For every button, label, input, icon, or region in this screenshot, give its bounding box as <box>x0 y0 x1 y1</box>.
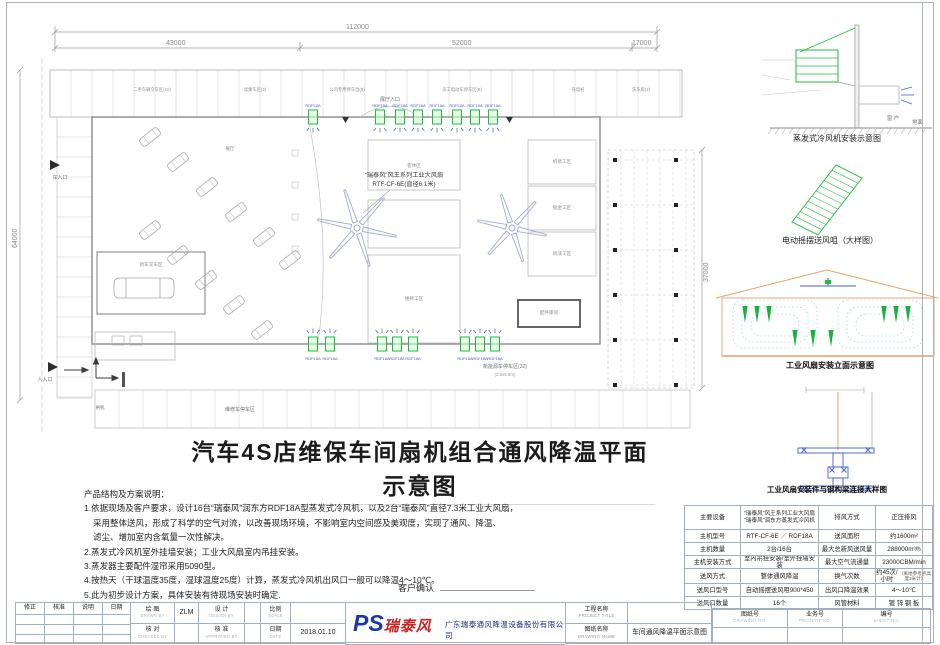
drawing-no-label: 图纸号DRAWING NO. <box>713 609 788 628</box>
spec-label: 主机安装方式 <box>685 556 741 569</box>
checked-by-value <box>175 624 199 644</box>
spec-value: RTF-CF-6E ／ RDF18A <box>741 530 819 543</box>
drawn-by-value: ZLM <box>175 603 199 624</box>
note-line: 2.蒸发式冷风机室外挂墙安装；工业大风扇室内吊挂安装。 <box>84 545 564 559</box>
scale-value <box>291 603 346 624</box>
customer-confirm-label: 客户确认 <box>398 583 434 593</box>
spec-value: “瑞泰风”风王系列工业大风扇 “瑞泰风”润东方蒸发式冷风机 <box>741 506 819 530</box>
detail3-caption: 工业风扇安装立面示意图 <box>745 360 915 371</box>
spec-value: 整体通风降温 <box>741 569 819 584</box>
spec-label: 主机数量 <box>685 543 741 556</box>
signature-line <box>440 580 535 591</box>
spec-value: 自动摇摆送风咀900*450 <box>741 584 819 597</box>
scale-label: 比例SCALE <box>261 603 291 624</box>
detail4-caption: 工业风扇安装件与钢构梁连接大样图 <box>742 484 912 495</box>
project-no-label: 业务号PROJECT NO. <box>788 609 843 628</box>
rev-cell <box>103 635 131 644</box>
revision-table: 修正 核准 说明 日期 <box>15 602 131 644</box>
logo-brand-name: 瑞泰风 <box>384 618 432 635</box>
company-name: 广东瑞泰通风降温设备股份有限公司 <box>445 619 565 641</box>
drawing-name-label: 图纸名称DRAWING NAME <box>566 624 628 644</box>
spec-label: 出风口降温效果 <box>819 584 876 597</box>
spec-label: 最大空气流通量 <box>819 556 876 569</box>
signature-block: 绘 图DRAWN BY ZLM 设 计DESIGN BY 比例SCALE 核 对… <box>130 602 346 644</box>
spec-value: 2台/16台 <box>741 543 819 556</box>
spec-value: 4～10℃ <box>876 584 933 597</box>
project-title-label: 工程名称PROJECT TITLE <box>566 603 628 624</box>
spec-label: 最大总新风送风量 <box>819 543 876 556</box>
numbering-block: 图纸号DRAWING NO. 业务号PROJECT NO. 编号SHEET NO… <box>712 608 931 644</box>
drawing-name-value: 车间通风降温平面示意图 <box>628 624 712 644</box>
rev-header: 修正 <box>16 603 45 615</box>
spec-label: 排风方式 <box>819 506 876 530</box>
note-line: 3.蒸发器主要配件湿帘采用5090型。 <box>84 559 564 573</box>
sheet-no-label: 编号SHEET NO. <box>843 609 931 628</box>
rev-cell <box>45 635 74 644</box>
drawn-by-label: 绘 图DRAWN BY <box>131 603 175 624</box>
note-line: 1.依据现场及客户要求，设计16台“瑞泰风”润东方RDF18A型蒸发式冷风机，以… <box>84 501 564 515</box>
logo-block: PS瑞泰风 广东瑞泰通风降温设备股份有限公司 <box>345 602 565 645</box>
rev-cell <box>16 625 45 635</box>
company-logo: PS瑞泰风 <box>353 610 432 637</box>
design-by-label: 设 计DESIGN BY <box>199 603 245 624</box>
spec-value: 288000m³/h <box>876 543 933 556</box>
rev-cell <box>74 635 103 644</box>
spec-label: 送风口型号 <box>685 584 741 597</box>
logo-ps-mark: PS <box>353 610 384 636</box>
detail2-caption: 电动摇摆送风咀（大样图） <box>745 235 915 246</box>
rev-cell <box>45 625 74 635</box>
sheet-no-value <box>843 628 931 644</box>
approved-by-label: 核 准APPROVED BY <box>199 624 245 644</box>
spec-value: 室内吊挂安装/室外挂墙安装 <box>741 556 819 569</box>
project-title-value <box>628 603 712 624</box>
note-line: 采用整体送风，形成了科学的空气对流，以改善现场环境，不影响室内空间感及美观度，实… <box>84 516 564 530</box>
checked-by-label: 核 对CHECKED BY <box>131 624 175 644</box>
project-block: 工程名称PROJECT TITLE 图纸名称DRAWING NAME 车间通风降… <box>565 602 712 644</box>
rev-cell <box>45 615 74 625</box>
date-label: 日期DATE <box>261 624 291 644</box>
notes-heading: 产品结构及方案说明： <box>84 487 564 501</box>
approved-by-value <box>245 624 261 644</box>
spec-label: 送风方式 <box>685 569 741 584</box>
note-line: 滤尘、增加室内含氧量一次性解决。 <box>84 530 564 544</box>
rev-cell <box>74 625 103 635</box>
spec-label: 换气次数 <box>819 569 876 584</box>
rev-cell <box>16 615 45 625</box>
rev-cell <box>74 615 103 625</box>
spec-value: 正压排风 <box>876 506 933 530</box>
design-by-value <box>245 603 261 624</box>
spec-label: 主机型号 <box>685 530 741 543</box>
rev-header: 核准 <box>45 603 74 615</box>
rev-cell <box>103 615 131 625</box>
detail1-caption: 蒸发式冷风机安装示意图 <box>752 133 922 144</box>
spec-value: 约1600m² <box>876 530 933 543</box>
date-value: 2018.01.10 <box>291 624 346 644</box>
spec-table: 主要设备 “瑞泰风”风王系列工业大风扇 “瑞泰风”润东方蒸发式冷风机 排风方式 … <box>684 505 933 610</box>
spec-label: 送风面积 <box>819 530 876 543</box>
spec-value: 23000CBM/min <box>876 556 933 569</box>
spec-label: 主要设备 <box>685 506 741 530</box>
spec-value-sub: （离地参考点高度3米计） <box>898 571 932 581</box>
rev-header: 日期 <box>103 603 131 615</box>
project-no-value <box>788 628 843 644</box>
drawing-no-value <box>713 628 788 644</box>
spec-value: 约45次/小时（离地参考点高度3米计） <box>876 569 933 584</box>
rev-cell <box>16 635 45 644</box>
customer-confirm: 客户确认 <box>398 580 535 594</box>
rev-cell <box>103 625 131 635</box>
rev-header: 说明 <box>74 603 103 615</box>
